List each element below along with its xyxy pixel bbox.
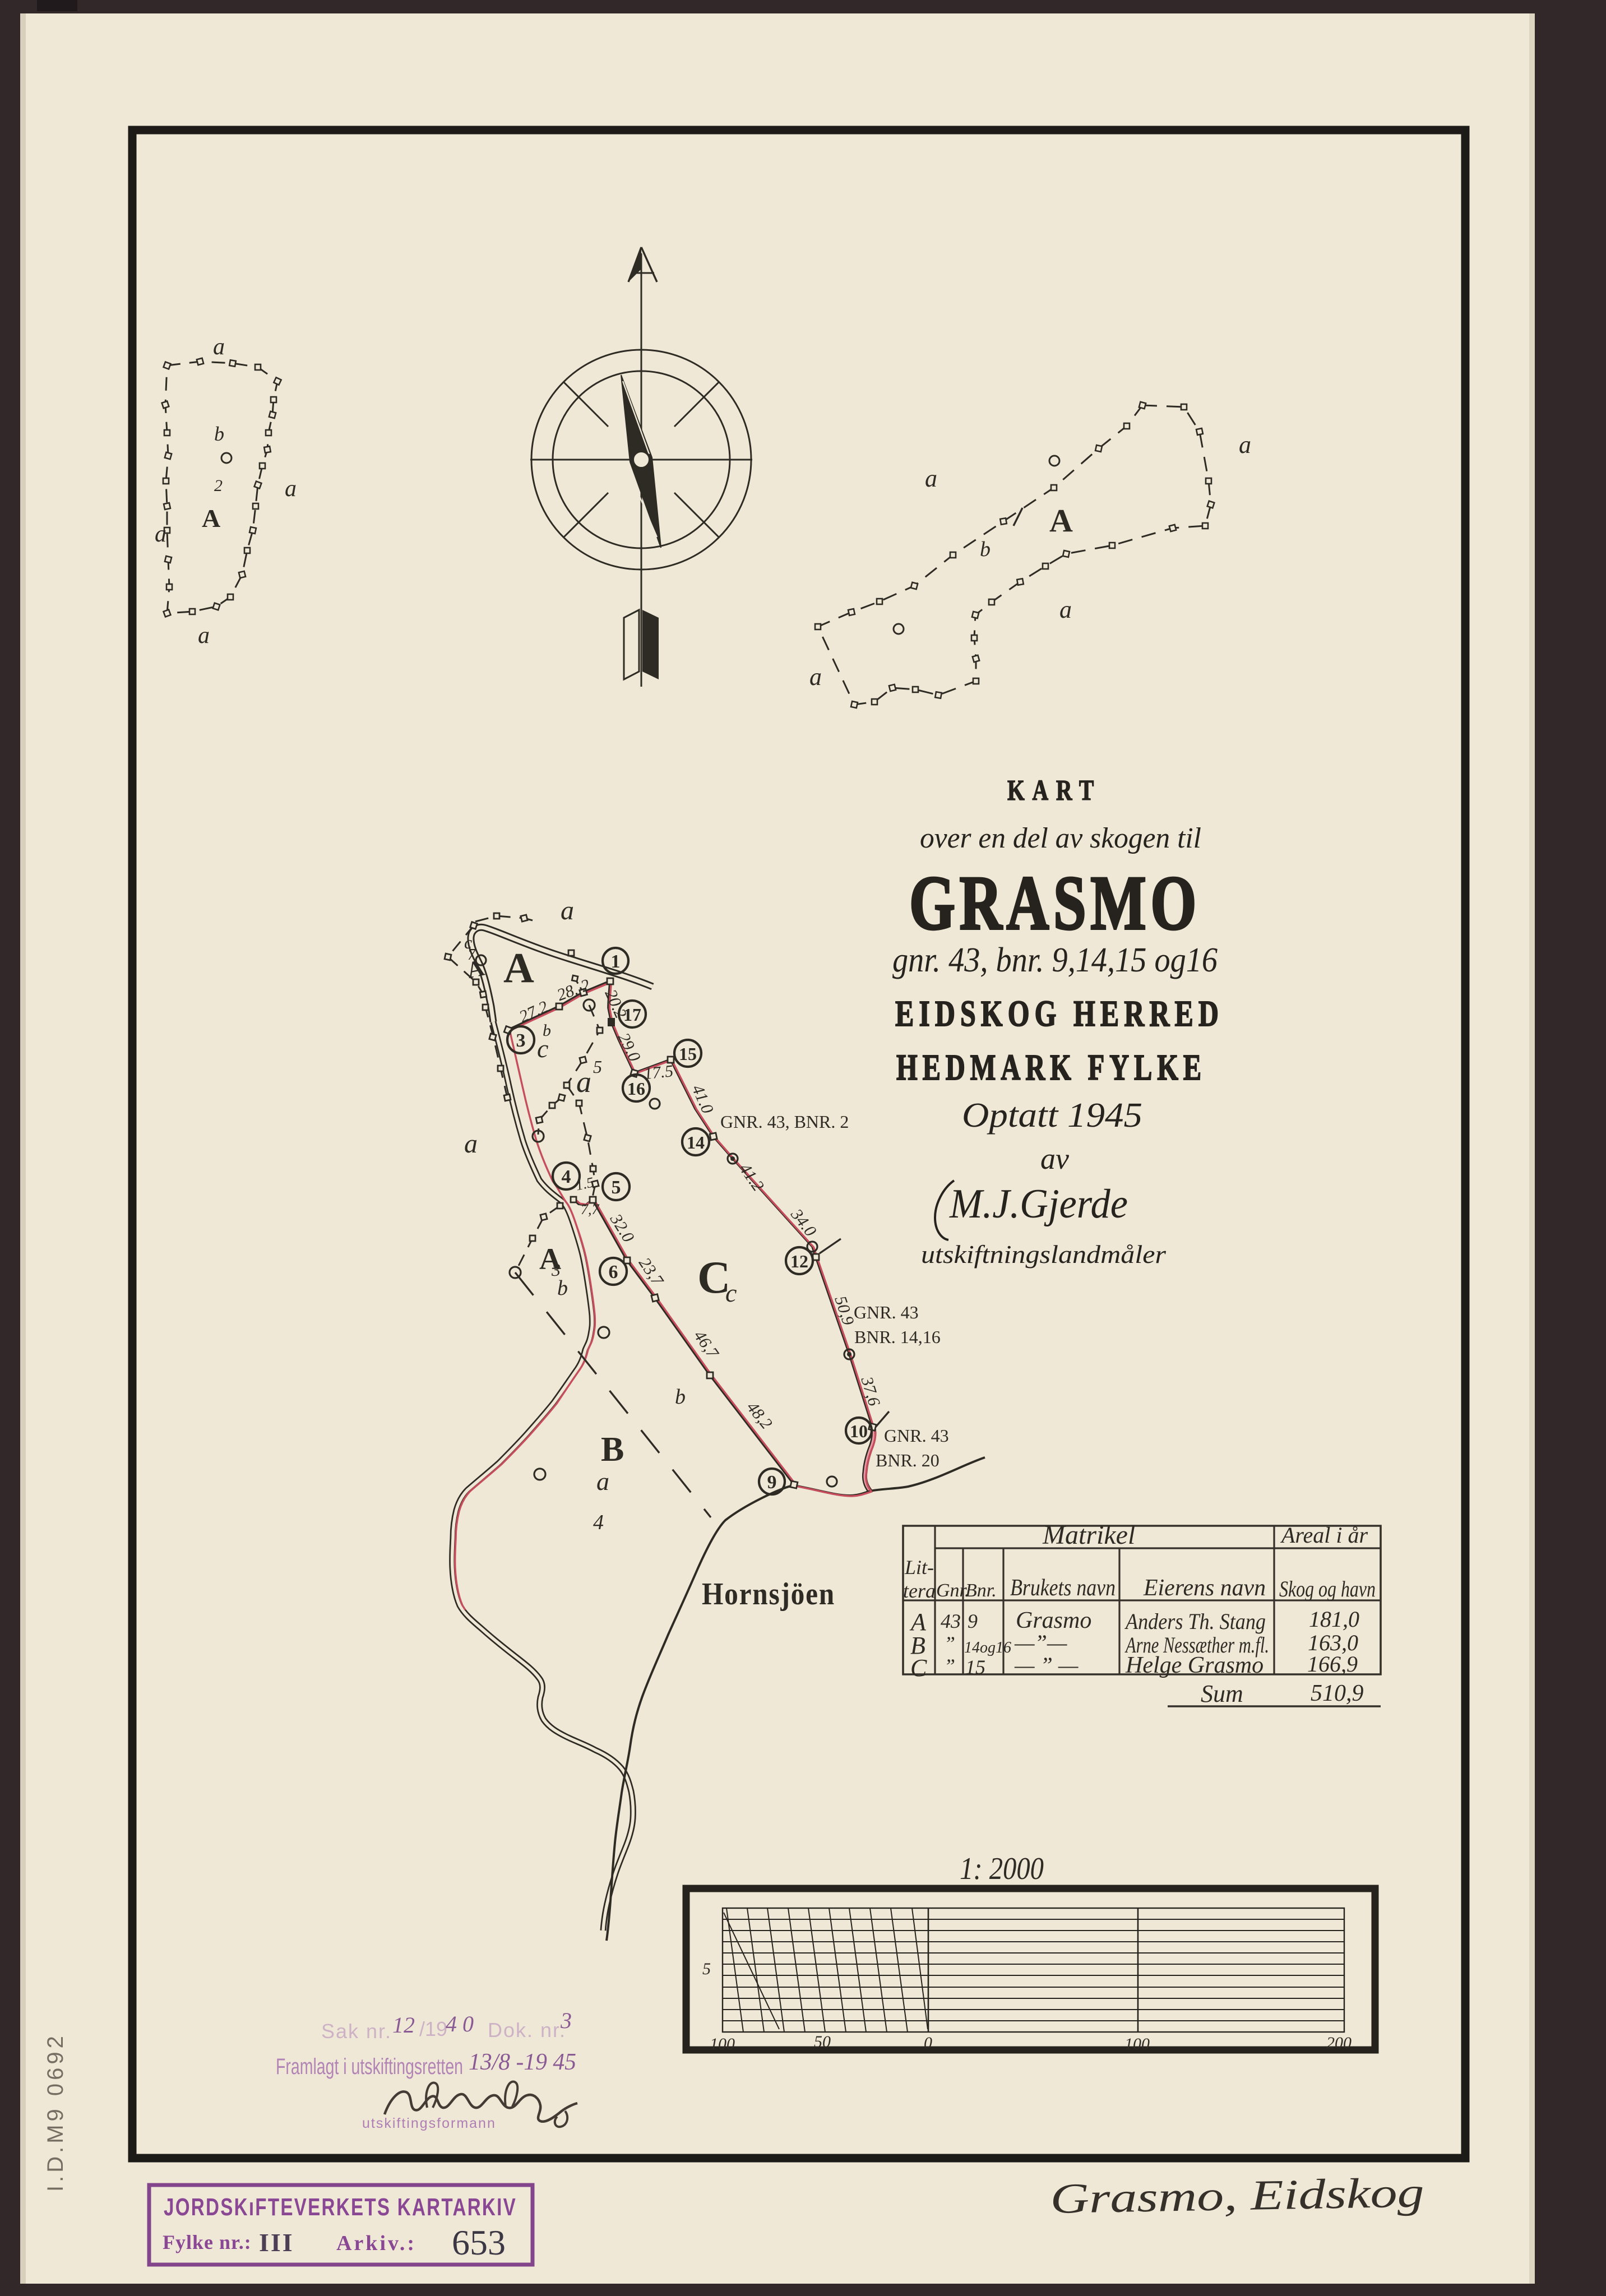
svg-text:Framlagt i utskiftingsretten: Framlagt i utskiftingsretten — [276, 2054, 463, 2079]
svg-text:1: 1 — [611, 951, 621, 972]
svg-text:Eierens navn: Eierens navn — [1143, 1575, 1266, 1601]
svg-text:b: b — [214, 423, 224, 445]
svg-text:A: A — [202, 504, 220, 533]
svg-text:c: c — [725, 1279, 737, 1307]
svg-text:b: b — [675, 1385, 686, 1409]
svg-text:Sum: Sum — [1201, 1680, 1243, 1707]
svg-text:Brukets navn: Brukets navn — [1010, 1575, 1116, 1601]
svg-text:a: a — [213, 334, 225, 360]
svg-text:16: 16 — [627, 1078, 645, 1099]
svg-text:BNR. 14,16: BNR. 14,16 — [854, 1327, 941, 1347]
svg-text:A: A — [1049, 502, 1073, 539]
svg-text:Bnr.: Bnr. — [965, 1580, 997, 1601]
svg-text:Gnr.: Gnr. — [936, 1580, 970, 1601]
svg-text:Fylke nr.:: Fylke nr.: — [163, 2231, 252, 2253]
svg-text:Grasmo, Eidskog: Grasmo, Eidskog — [1050, 2169, 1424, 2223]
svg-text:Arkiv.:: Arkiv.: — [336, 2232, 416, 2255]
svg-text:a: a — [1239, 431, 1251, 459]
svg-text:HEDMARK FYLKE: HEDMARK FYLKE — [896, 1047, 1206, 1088]
svg-text:17.5: 17.5 — [643, 1062, 674, 1083]
svg-text:a: a — [561, 896, 574, 925]
svg-text:100: 100 — [710, 2035, 735, 2053]
svg-text:0: 0 — [924, 2034, 932, 2052]
svg-text:1: 2000: 1: 2000 — [960, 1851, 1044, 1886]
svg-text:a: a — [576, 1065, 591, 1099]
svg-text:9: 9 — [968, 1610, 978, 1632]
svg-text:10: 10 — [850, 1421, 868, 1441]
svg-text:/19: /19 — [419, 2017, 447, 2040]
svg-text:100: 100 — [1124, 2035, 1150, 2053]
svg-text:KART: KART — [1007, 775, 1101, 807]
svg-text:C: C — [910, 1654, 927, 1682]
svg-text:5: 5 — [593, 1057, 602, 1077]
svg-text:4: 4 — [593, 1511, 604, 1534]
svg-text:over en del av skogen til: over en del av skogen til — [920, 822, 1201, 854]
svg-text:b: b — [557, 1276, 568, 1300]
svg-text:Optatt 1945: Optatt 1945 — [962, 1096, 1142, 1135]
svg-text:5: 5 — [702, 1960, 711, 1978]
svg-text:B: B — [601, 1431, 624, 1469]
svg-text:510,9: 510,9 — [1311, 1681, 1364, 1706]
svg-text:Hornsjöen: Hornsjöen — [702, 1577, 835, 1612]
svg-text:III: III — [259, 2228, 294, 2257]
svg-text:c: c — [537, 1034, 548, 1063]
svg-text:Anders Th. Stang: Anders Th. Stang — [1124, 1609, 1266, 1634]
svg-text:181,0: 181,0 — [1309, 1607, 1359, 1632]
svg-text:Skog og havn: Skog og havn — [1279, 1576, 1376, 1601]
svg-text:Areal i år: Areal i år — [1280, 1522, 1368, 1548]
svg-text:utskiftningslandmåler: utskiftningslandmåler — [921, 1240, 1167, 1269]
svg-text:I.D.M9 0692: I.D.M9 0692 — [43, 2033, 68, 2192]
svg-text:13/8 -19 45: 13/8 -19 45 — [469, 2049, 576, 2075]
svg-text:Lit-: Lit- — [904, 1556, 934, 1578]
svg-text:4: 4 — [562, 1166, 571, 1187]
svg-text:12: 12 — [392, 2012, 415, 2038]
svg-text:JORDSKıFTEVERKETS KARTARKIV: JORDSKıFTEVERKETS KARTARKIV — [164, 2193, 517, 2221]
svg-text:Dok. nr.: Dok. nr. — [488, 2019, 566, 2042]
svg-text:200: 200 — [1326, 2034, 1352, 2052]
svg-text:2: 2 — [214, 476, 223, 495]
svg-text:7: 7 — [468, 946, 476, 964]
svg-text:653: 653 — [452, 2223, 506, 2262]
svg-text:3: 3 — [560, 2008, 572, 2033]
svg-text:GNR. 43: GNR. 43 — [884, 1425, 949, 1446]
svg-text:43: 43 — [941, 1610, 961, 1632]
svg-text:gnr. 43, bnr. 9,14,15 og16: gnr. 43, bnr. 9,14,15 og16 — [892, 941, 1218, 979]
svg-text:GRASMO: GRASMO — [909, 860, 1201, 946]
svg-text:12: 12 — [790, 1251, 808, 1271]
svg-text:EIDSKOG HERRED: EIDSKOG HERRED — [895, 993, 1224, 1034]
svg-text:av: av — [1040, 1142, 1069, 1175]
svg-text:14: 14 — [687, 1132, 705, 1152]
svg-text:Helge Grasmo: Helge Grasmo — [1125, 1652, 1263, 1678]
svg-text:a: a — [925, 465, 937, 492]
svg-text:BNR. 20: BNR. 20 — [876, 1450, 939, 1470]
svg-text:a: a — [809, 663, 822, 691]
svg-text:Sak nr.: Sak nr. — [321, 2020, 392, 2043]
svg-text:”: ” — [944, 1632, 955, 1655]
svg-text:3: 3 — [516, 1030, 526, 1051]
svg-text:M.J.Gjerde: M.J.Gjerde — [949, 1181, 1128, 1227]
svg-text:Matrikel: Matrikel — [1042, 1520, 1135, 1550]
svg-text:a: a — [198, 623, 210, 649]
svg-text:b: b — [980, 538, 991, 561]
svg-text:GNR. 43, BNR. 2: GNR. 43, BNR. 2 — [720, 1112, 849, 1132]
svg-text:9: 9 — [767, 1472, 777, 1493]
svg-text:7,7: 7,7 — [581, 1201, 600, 1218]
svg-text:14og16: 14og16 — [964, 1639, 1011, 1656]
svg-text:A: A — [503, 945, 534, 992]
svg-text:5: 5 — [612, 1177, 621, 1198]
svg-text:a: a — [596, 1467, 609, 1496]
svg-text:—”—: —”— — [1014, 1630, 1067, 1655]
svg-text:a: a — [464, 1129, 478, 1159]
svg-text:”: ” — [944, 1655, 955, 1677]
svg-text:4 0: 4 0 — [446, 2011, 474, 2036]
svg-text:a: a — [285, 476, 297, 502]
svg-text:a: a — [1059, 596, 1072, 623]
svg-text:6: 6 — [609, 1262, 618, 1283]
svg-text:50: 50 — [814, 2033, 831, 2051]
svg-text:GNR. 43: GNR. 43 — [854, 1302, 919, 1322]
svg-text:tera: tera — [903, 1580, 936, 1602]
svg-text:a: a — [155, 521, 166, 547]
svg-text:15: 15 — [965, 1656, 985, 1678]
svg-text:— ” —: — ” — — [1014, 1652, 1079, 1678]
svg-text:166,9: 166,9 — [1307, 1651, 1358, 1677]
svg-text:15: 15 — [679, 1044, 697, 1064]
svg-text:utskiftingsformann: utskiftingsformann — [362, 2116, 496, 2131]
